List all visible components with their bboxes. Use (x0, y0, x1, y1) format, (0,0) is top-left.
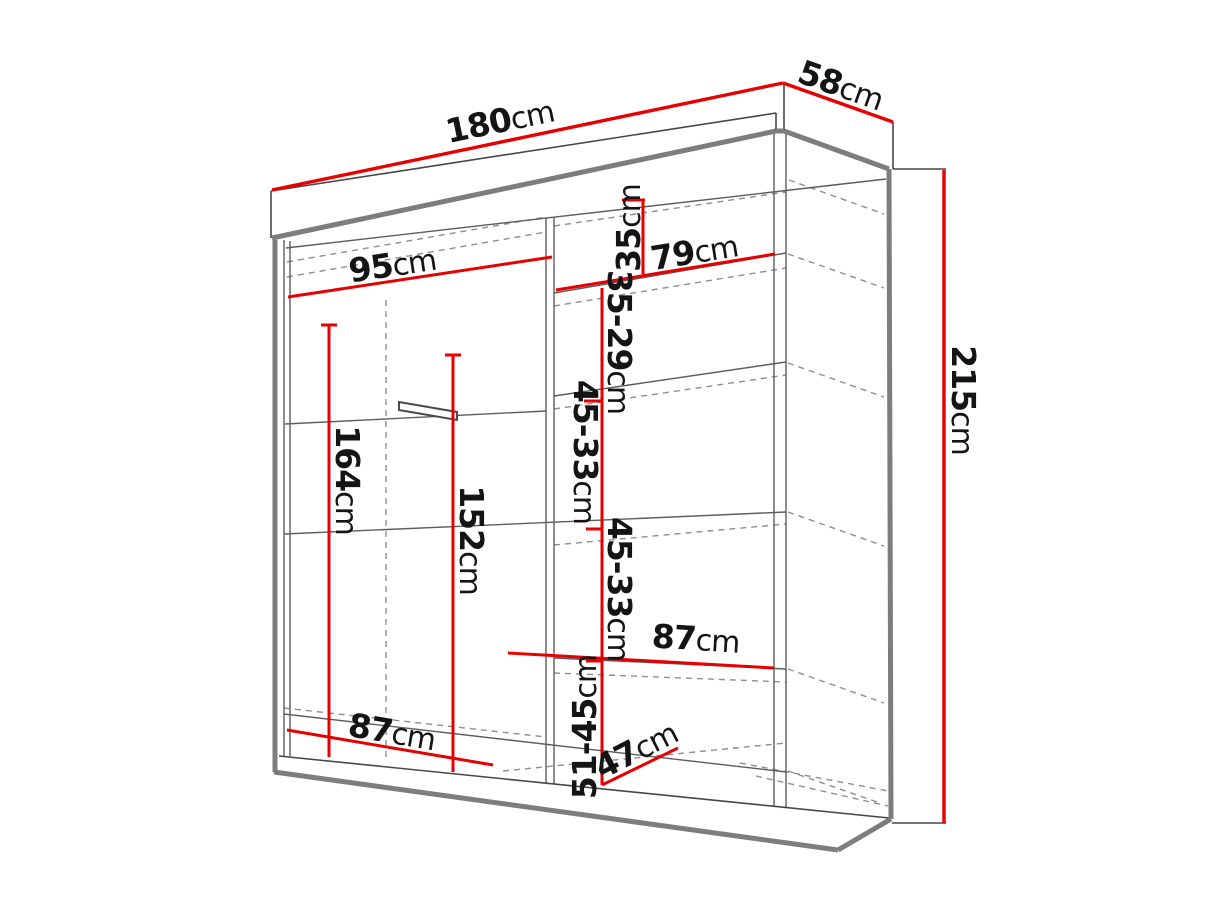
label-middle-shelf-gap-2: 45-33cm (600, 517, 639, 661)
label-left-hanging-height: 164cm (328, 425, 367, 535)
label-middle-shelf-gap-1: 45-33cm (566, 380, 605, 524)
label-left-section-width: 95cm (346, 239, 439, 291)
label-bottom-shelf-gap: 51-45cm (565, 655, 604, 799)
label-left-inner-height: 152cm (452, 485, 491, 595)
label-right-shelf-width: 87cm (651, 616, 741, 660)
label-right-section-width: 79cm (648, 225, 741, 278)
label-overall-depth: 58cm (793, 52, 889, 118)
diagram-drawing: 180cm 58cm 215cm 95cm 79cm 35cm 35-29cm … (0, 0, 1214, 910)
label-top-shelf-height: 35cm (609, 184, 648, 272)
label-overall-height: 215cm (944, 345, 983, 455)
label-left-bottom-width: 87cm (345, 705, 438, 758)
wardrobe-dimension-diagram: 180cm 58cm 215cm 95cm 79cm 35cm 35-29cm … (0, 0, 1214, 910)
dimension-labels: 180cm 58cm 215cm 95cm 79cm 35cm 35-29cm … (328, 52, 983, 799)
